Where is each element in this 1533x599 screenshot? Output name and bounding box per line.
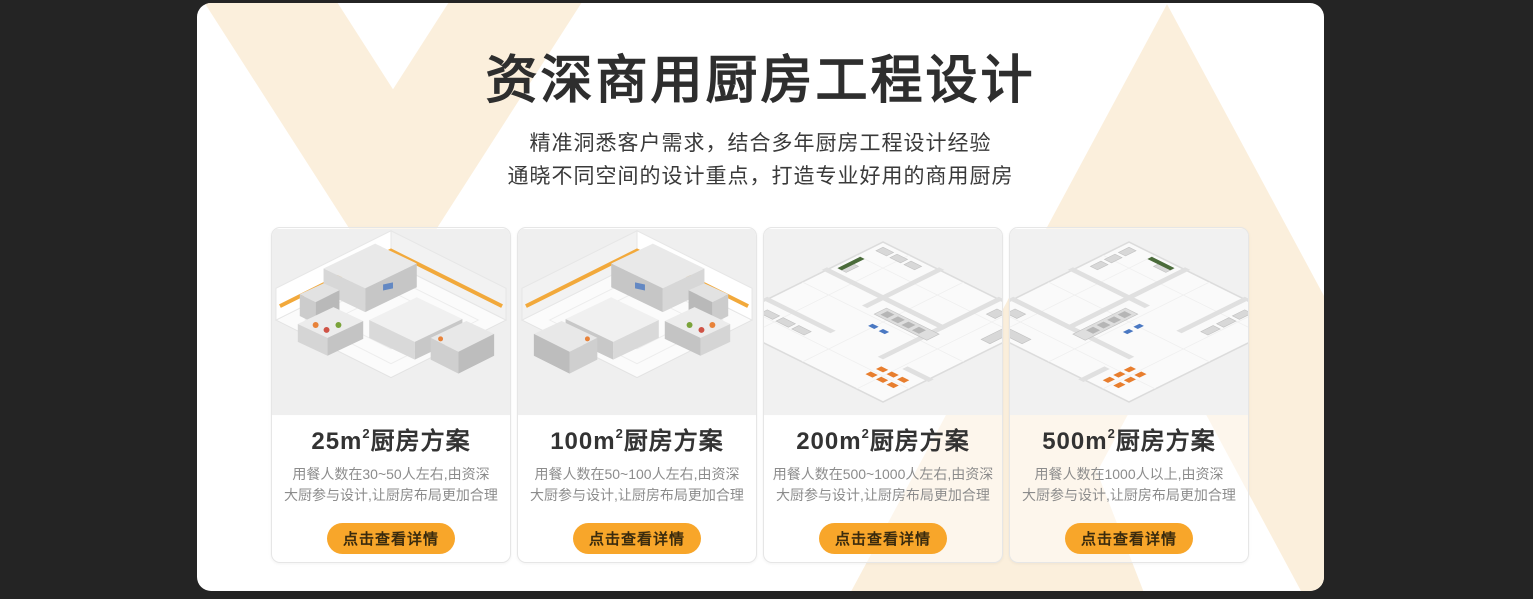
card-description: 用餐人数在1000人以上,由资深 大厨参与设计,让厨房布局更加合理 (1022, 464, 1236, 506)
card-description-line-2: 大厨参与设计,让厨房布局更加合理 (773, 485, 994, 506)
card-size-superscript: 2 (616, 426, 624, 441)
view-details-button[interactable]: 点击查看详情 (1065, 523, 1193, 554)
card-description-line-2: 大厨参与设计,让厨房布局更加合理 (1022, 485, 1236, 506)
kitchen-render-image (1010, 228, 1248, 416)
view-details-button[interactable]: 点击查看详情 (573, 523, 701, 554)
card-description-line-1: 用餐人数在1000人以上,由资深 (1022, 464, 1236, 485)
subtitle-line-1: 精准洞悉客户需求，结合多年厨房工程设计经验 (197, 128, 1324, 161)
card-description-line-2: 大厨参与设计,让厨房布局更加合理 (284, 485, 498, 506)
card-title-suffix: 厨房方案 (870, 428, 970, 455)
subtitle-line-2: 通晓不同空间的设计重点，打造专业好用的商用厨房 (197, 161, 1324, 194)
card-size-superscript: 2 (362, 426, 370, 441)
card-size-superscript: 2 (862, 426, 870, 441)
card-size-label: 200m (796, 428, 861, 455)
card-size-label: 500m (1042, 428, 1107, 455)
card-size-label: 25m (311, 428, 362, 455)
card-description: 用餐人数在30~50人左右,由资深 大厨参与设计,让厨房布局更加合理 (284, 464, 498, 506)
card-description: 用餐人数在50~100人左右,由资深 大厨参与设计,让厨房布局更加合理 (530, 464, 744, 506)
card-title: 200m2厨房方案 (796, 429, 970, 455)
card-size-label: 100m (550, 428, 615, 455)
kitchen-render-image (518, 228, 756, 416)
bottom-dark-strip (0, 591, 1533, 599)
content-panel: 资深商用厨房工程设计 精准洞悉客户需求，结合多年厨房工程设计经验 通晓不同空间的… (197, 3, 1324, 591)
card-title: 25m2厨房方案 (311, 429, 470, 455)
kitchen-plan-card-500m2: 500m2厨房方案 用餐人数在1000人以上,由资深 大厨参与设计,让厨房布局更… (1009, 227, 1249, 563)
view-details-button[interactable]: 点击查看详情 (819, 523, 947, 554)
page-subtitle: 精准洞悉客户需求，结合多年厨房工程设计经验 通晓不同空间的设计重点，打造专业好用… (197, 128, 1324, 193)
card-size-superscript: 2 (1108, 426, 1116, 441)
section-content: 资深商用厨房工程设计 精准洞悉客户需求，结合多年厨房工程设计经验 通晓不同空间的… (197, 3, 1324, 591)
card-description-line-1: 用餐人数在30~50人左右,由资深 (284, 464, 498, 485)
card-title-suffix: 厨房方案 (1116, 428, 1216, 455)
kitchen-plan-card-25m2: 25m2厨房方案 用餐人数在30~50人左右,由资深 大厨参与设计,让厨房布局更… (271, 227, 511, 563)
kitchen-render-image (764, 228, 1002, 416)
kitchen-plan-card-200m2: 200m2厨房方案 用餐人数在500~1000人左右,由资深 大厨参与设计,让厨… (763, 227, 1003, 563)
page-background: 资深商用厨房工程设计 精准洞悉客户需求，结合多年厨房工程设计经验 通晓不同空间的… (0, 0, 1533, 599)
card-description-line-1: 用餐人数在50~100人左右,由资深 (530, 464, 744, 485)
card-description-line-2: 大厨参与设计,让厨房布局更加合理 (530, 485, 744, 506)
card-description-line-1: 用餐人数在500~1000人左右,由资深 (773, 464, 994, 485)
kitchen-render-image (272, 228, 510, 416)
kitchen-plan-card-100m2: 100m2厨房方案 用餐人数在50~100人左右,由资深 大厨参与设计,让厨房布… (517, 227, 757, 563)
card-title: 100m2厨房方案 (550, 429, 724, 455)
card-description: 用餐人数在500~1000人左右,由资深 大厨参与设计,让厨房布局更加合理 (773, 464, 994, 506)
card-title-suffix: 厨房方案 (371, 428, 471, 455)
card-title-suffix: 厨房方案 (624, 428, 724, 455)
card-title: 500m2厨房方案 (1042, 429, 1216, 455)
view-details-button[interactable]: 点击查看详情 (327, 523, 455, 554)
page-title: 资深商用厨房工程设计 (197, 3, 1324, 110)
kitchen-plan-card-list: 25m2厨房方案 用餐人数在30~50人左右,由资深 大厨参与设计,让厨房布局更… (271, 227, 1257, 563)
